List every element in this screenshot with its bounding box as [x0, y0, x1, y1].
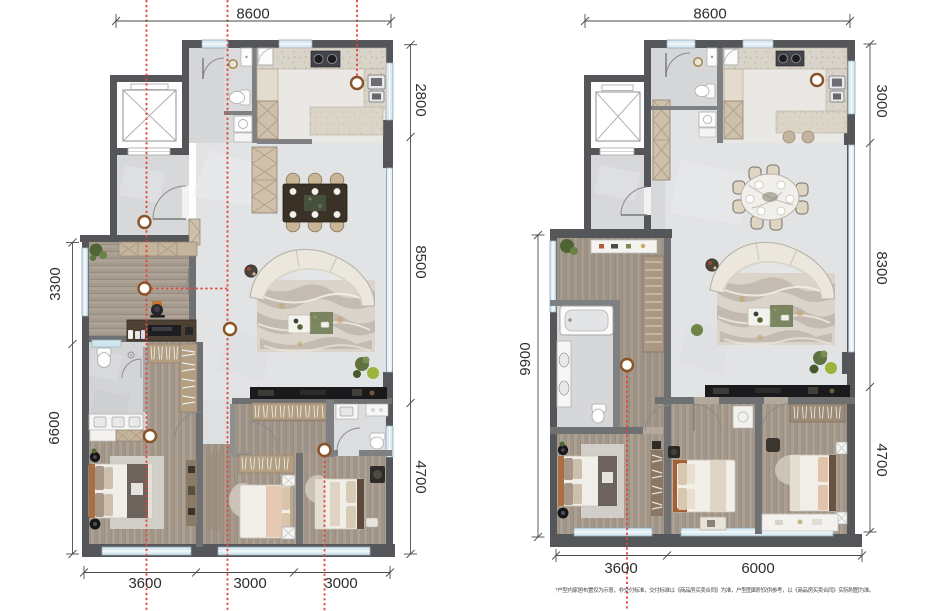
- svg-text:4700: 4700: [873, 443, 890, 476]
- svg-text:6000: 6000: [741, 560, 774, 577]
- svg-text:8500: 8500: [412, 245, 429, 278]
- svg-text:3000: 3000: [873, 84, 890, 117]
- svg-text:9900: 9900: [517, 342, 534, 375]
- svg-text:3300: 3300: [47, 267, 64, 300]
- svg-text:3000: 3000: [233, 575, 266, 592]
- svg-text:6600: 6600: [46, 411, 63, 444]
- svg-text:3600: 3600: [128, 575, 161, 592]
- svg-text:8300: 8300: [873, 251, 890, 284]
- svg-text:3600: 3600: [604, 560, 637, 577]
- svg-text:2800: 2800: [412, 83, 429, 116]
- svg-text:*户型内家居布置仅为示意，非交付标准，交付标准以《商品房买卖: *户型内家居布置仅为示意，非交付标准，交付标准以《商品房买卖合同》为准，户型图面…: [556, 586, 875, 594]
- svg-text:3000: 3000: [324, 575, 357, 592]
- svg-text:8600: 8600: [236, 6, 269, 23]
- svg-text:8600: 8600: [693, 6, 726, 23]
- svg-text:4700: 4700: [412, 460, 429, 493]
